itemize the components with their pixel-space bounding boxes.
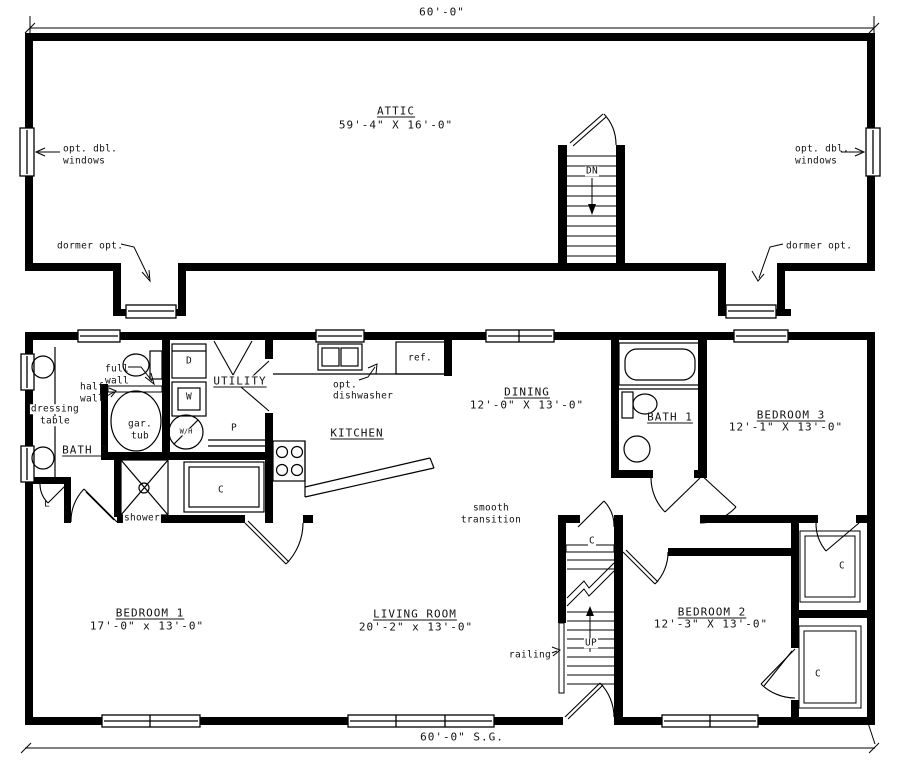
half-wall-label-1: half [80,382,104,392]
living-room-size: 20'-2" x 13'-0" [359,622,473,633]
bedroom1-room-label: BEDROOM 1 [116,608,185,619]
garden-tub-label-1: gar. [127,419,153,429]
stair-up-label: UP [584,638,598,648]
pantry-label: P [231,423,237,433]
attic-room-label: ATTIC [377,106,415,117]
bath2-room-label: BATH 2 [62,445,108,456]
water-heater-label: W/H [179,429,194,436]
attic-walls [25,33,875,316]
dining-room-label: DINING [504,387,550,398]
attic-windows-note-left-2: windows [63,156,105,166]
sink-icon [624,436,650,462]
bedroom3-room-label: BEDROOM 3 [757,410,826,421]
shower-label: shower [123,513,161,523]
dining-room-size: 12'-0" X 13'-0" [470,400,584,411]
bedroom1-room-size: 17'-0" x 13'-0" [90,621,204,632]
closet-label-1: C [218,485,224,495]
living-room-label: LIVING ROOM [373,609,457,620]
attic-windows-note-right-2: windows [795,156,837,166]
bath1-room-label: BATH 1 [647,412,693,423]
down-arrowhead [588,204,596,215]
bottom-dimension-label: 60'-0" S.G. [420,732,504,743]
kitchen-dining-stub [444,332,452,376]
bedroom3-room-size: 12'-1" X 13'-0" [729,422,843,433]
half-wall-label-2: wall [80,394,104,404]
top-dimension-label: 60'-0" [419,7,465,18]
bedroom3-closet [800,531,860,602]
sink-icon [32,356,54,378]
arrowhead [368,364,377,374]
attic-room-size: 59'-4" X 16'-0" [339,120,453,131]
arrowhead [752,271,764,281]
bath1-fixtures [619,343,701,462]
washer-label: W [186,392,192,402]
utility-kitchen-wall [265,339,273,359]
railing [559,623,564,693]
closet-label-2: C [588,536,596,546]
closet-column-wall [791,523,799,648]
railing-label: railing [508,650,552,660]
front-door [565,683,600,717]
bedroom2-room-size: 12'-3" X 13'-0" [654,619,768,630]
floor-plan-sheet: 60'-0" ATTIC 59'-4" X 16'-0" opt. dbl. w… [0,0,904,764]
closet-label-4: C [815,669,821,679]
bath1-east-wall [698,339,707,478]
attic-windows-note-left-1: opt. dbl. [63,144,117,154]
attic-stair-door [570,114,616,146]
attic-stair-label: DN [585,166,599,176]
attic-stairwell [558,145,567,271]
main-stairs-up [559,560,614,693]
break-line [567,563,614,598]
hall-south-wall [700,515,818,523]
kitchen-fixtures [273,342,446,497]
linen-closet-label: L [44,499,50,509]
sink-icon [32,447,54,469]
up-arrowhead [586,606,594,616]
attic-dormer-note-right: dormer opt. [786,241,852,251]
stair-east-wall [614,515,623,718]
kitchen-room-label: KITCHEN [330,428,383,439]
bedroom2-closet [799,626,861,708]
dishwasher-note-2: dishwasher [333,391,393,401]
dressing-table-label-2: table [39,416,71,426]
transition-note-1: smooth [473,503,509,513]
bath2-utility-wall [162,339,170,459]
full-wall-label-2: wall [105,376,129,386]
utility-room-label: UTILITY [212,376,267,387]
garden-tub-label-2: tub [130,431,150,441]
floor-plan-drawing [0,0,904,764]
dishwasher-note-1: opt. [333,380,357,390]
attic-windows [20,128,880,318]
stair-west-wall [558,523,566,623]
left-dormer [113,263,121,316]
dryer-label: D [186,356,192,366]
attic-leaders [36,148,864,281]
bedroom2-room-label: BEDROOM 2 [678,607,747,618]
dining-bath1-wall [611,339,619,472]
transition-note-2: transition [461,515,521,525]
attic-windows-note-right-1: opt. dbl. [795,144,849,154]
refrigerator-label: ref. [408,353,432,363]
dressing-table-label-1: dressing [30,404,80,414]
toilet-tank [622,392,633,418]
closet-label-3: C [839,561,845,571]
attic-dormer-note-left: dormer opt. [57,241,123,251]
full-wall-label-1: full [105,364,129,374]
right-dormer [718,263,726,316]
bedroom2-north-wall [668,548,793,556]
